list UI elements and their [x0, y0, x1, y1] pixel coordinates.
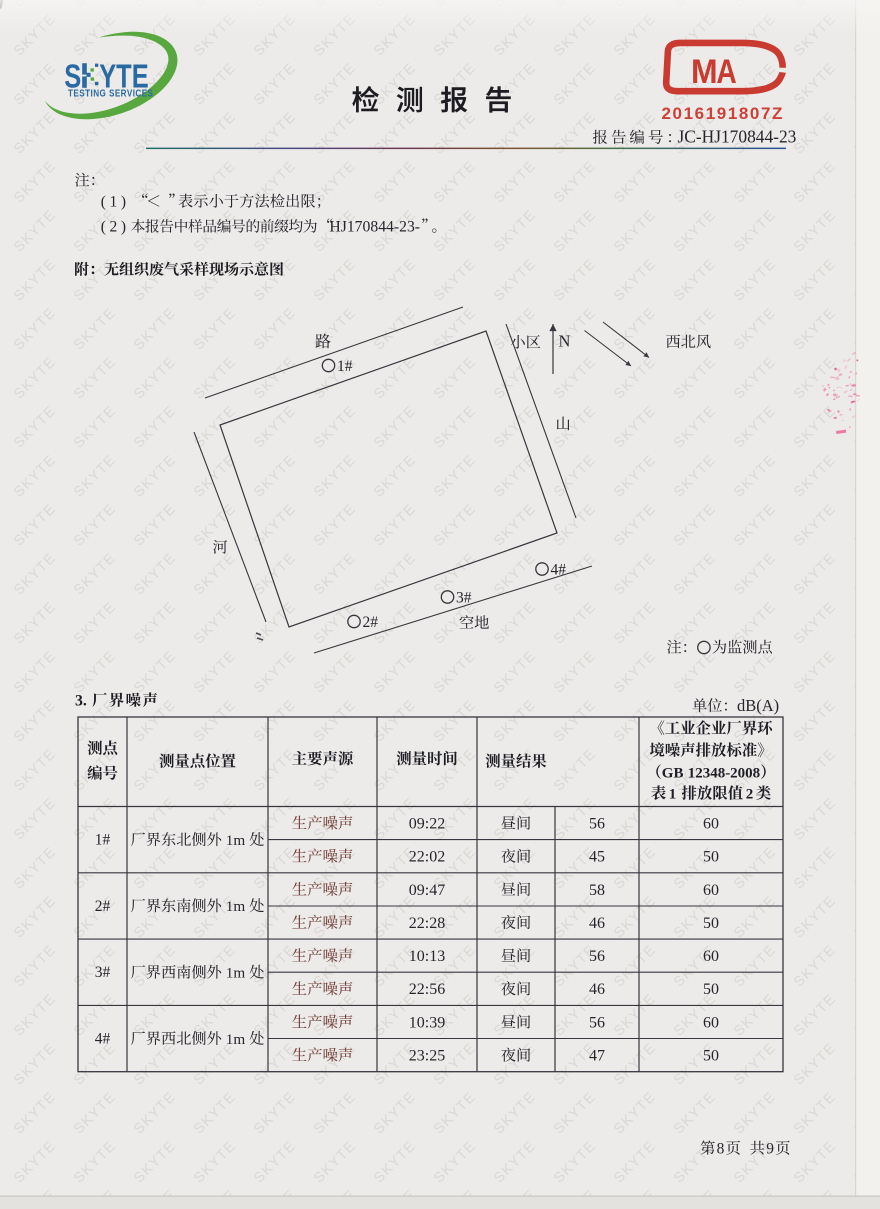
svg-text:10:39: 10:39 — [409, 1014, 445, 1031]
svg-text:M: M — [691, 52, 718, 90]
svg-text:58: 58 — [589, 882, 605, 899]
svg-text:47: 47 — [589, 1048, 605, 1065]
svg-text:A: A — [716, 53, 736, 91]
svg-text:22:02: 22:02 — [409, 849, 445, 866]
svg-text:1m: 1m — [226, 965, 246, 982]
svg-text:56: 56 — [589, 816, 605, 833]
svg-text:46: 46 — [589, 981, 605, 998]
svg-text:(1): (1) — [101, 194, 130, 211]
svg-text:9: 9 — [766, 1141, 774, 1158]
svg-text:56: 56 — [589, 1014, 605, 1031]
svg-text:23:25: 23:25 — [409, 1048, 445, 1065]
svg-text:50: 50 — [703, 1048, 719, 1065]
svg-text:22:28: 22:28 — [409, 915, 445, 932]
svg-text:09:22: 09:22 — [409, 816, 445, 833]
svg-text:1m: 1m — [226, 1031, 246, 1048]
svg-text:50: 50 — [703, 915, 719, 932]
svg-text:4#: 4# — [551, 562, 567, 579]
svg-text:1#: 1# — [337, 358, 353, 375]
svg-text:HJ170844-23-: HJ170844-23- — [329, 219, 420, 236]
svg-text:60: 60 — [703, 816, 719, 833]
svg-text:2#: 2# — [363, 614, 379, 631]
svg-text:60: 60 — [703, 1014, 719, 1031]
svg-text:56: 56 — [589, 948, 605, 965]
svg-text:50: 50 — [703, 981, 719, 998]
svg-text:4#: 4# — [95, 1031, 111, 1048]
svg-text:2: 2 — [746, 787, 754, 803]
svg-text:60: 60 — [703, 948, 719, 965]
svg-text:dB(A): dB(A) — [737, 696, 779, 715]
svg-text:2#: 2# — [95, 898, 111, 915]
svg-text:TESTING SERVICES: TESTING SERVICES — [68, 88, 153, 99]
svg-text:46: 46 — [589, 915, 605, 932]
svg-text:1m: 1m — [226, 832, 246, 849]
svg-text:(2): (2) — [101, 219, 130, 236]
svg-text:3#: 3# — [95, 964, 111, 981]
svg-text:12348-2008: 12348-2008 — [688, 766, 761, 782]
svg-text:22:56: 22:56 — [409, 981, 445, 998]
svg-text:1#: 1# — [95, 832, 111, 849]
svg-text:GB: GB — [662, 766, 684, 782]
svg-text:60: 60 — [703, 882, 719, 899]
svg-text:8: 8 — [717, 1141, 725, 1158]
svg-text:1m: 1m — [226, 898, 246, 915]
svg-text:N: N — [559, 332, 571, 351]
svg-text:JC-HJ170844-23: JC-HJ170844-23 — [678, 127, 797, 147]
svg-text:50: 50 — [703, 849, 719, 866]
svg-text:09:47: 09:47 — [409, 882, 445, 899]
svg-text:1: 1 — [669, 787, 677, 803]
svg-text:3.: 3. — [75, 693, 87, 710]
svg-text:45: 45 — [589, 849, 605, 866]
svg-text:3#: 3# — [456, 590, 472, 607]
svg-text:2016191807Z: 2016191807Z — [662, 104, 785, 123]
svg-text:10:13: 10:13 — [409, 948, 445, 965]
